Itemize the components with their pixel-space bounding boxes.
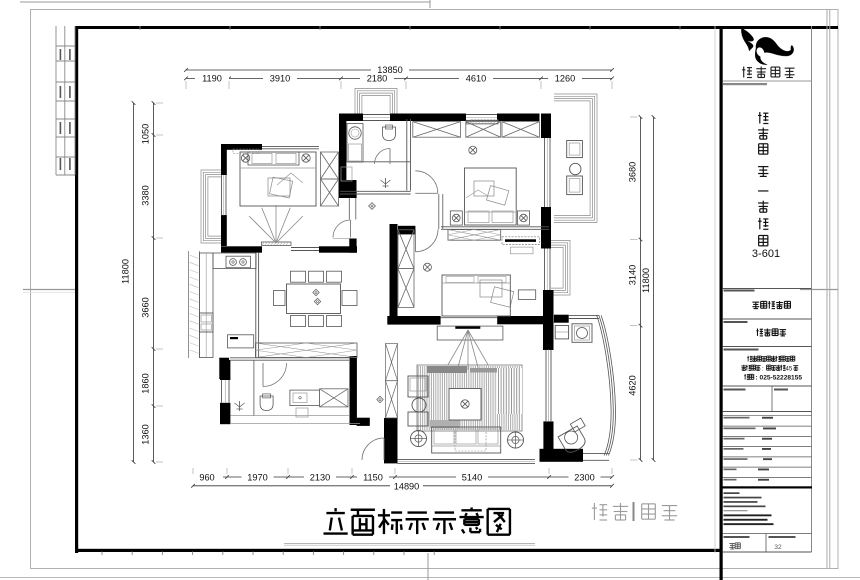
svg-text:1050: 1050 <box>141 124 151 144</box>
svg-text:5140: 5140 <box>462 472 482 482</box>
svg-text:11800: 11800 <box>641 268 651 293</box>
svg-text:14890: 14890 <box>394 481 420 491</box>
svg-text:2130: 2130 <box>310 472 330 482</box>
svg-text:2180: 2180 <box>367 74 387 84</box>
svg-text:4610: 4610 <box>466 74 486 84</box>
svg-text:11800: 11800 <box>121 259 131 284</box>
svg-text:3910: 3910 <box>270 74 290 84</box>
svg-text:32: 32 <box>774 544 782 551</box>
svg-text:1860: 1860 <box>141 373 151 393</box>
svg-text:45: 45 <box>786 366 793 372</box>
svg-text:1260: 1260 <box>555 74 575 84</box>
svg-text:3380: 3380 <box>141 185 151 205</box>
svg-text:4620: 4620 <box>628 375 638 395</box>
svg-text:3660: 3660 <box>141 297 151 317</box>
svg-text:3140: 3140 <box>628 265 638 285</box>
svg-text:2300: 2300 <box>574 472 594 482</box>
svg-text:: 025-52228155: : 025-52228155 <box>756 375 803 382</box>
svg-text:3-601: 3-601 <box>752 248 780 260</box>
svg-text:1360: 1360 <box>141 424 151 444</box>
svg-text:3680: 3680 <box>628 162 638 182</box>
svg-text:1190: 1190 <box>202 74 222 84</box>
svg-text:1970: 1970 <box>247 472 267 482</box>
svg-text:960: 960 <box>199 472 214 482</box>
svg-text:1150: 1150 <box>363 472 383 482</box>
